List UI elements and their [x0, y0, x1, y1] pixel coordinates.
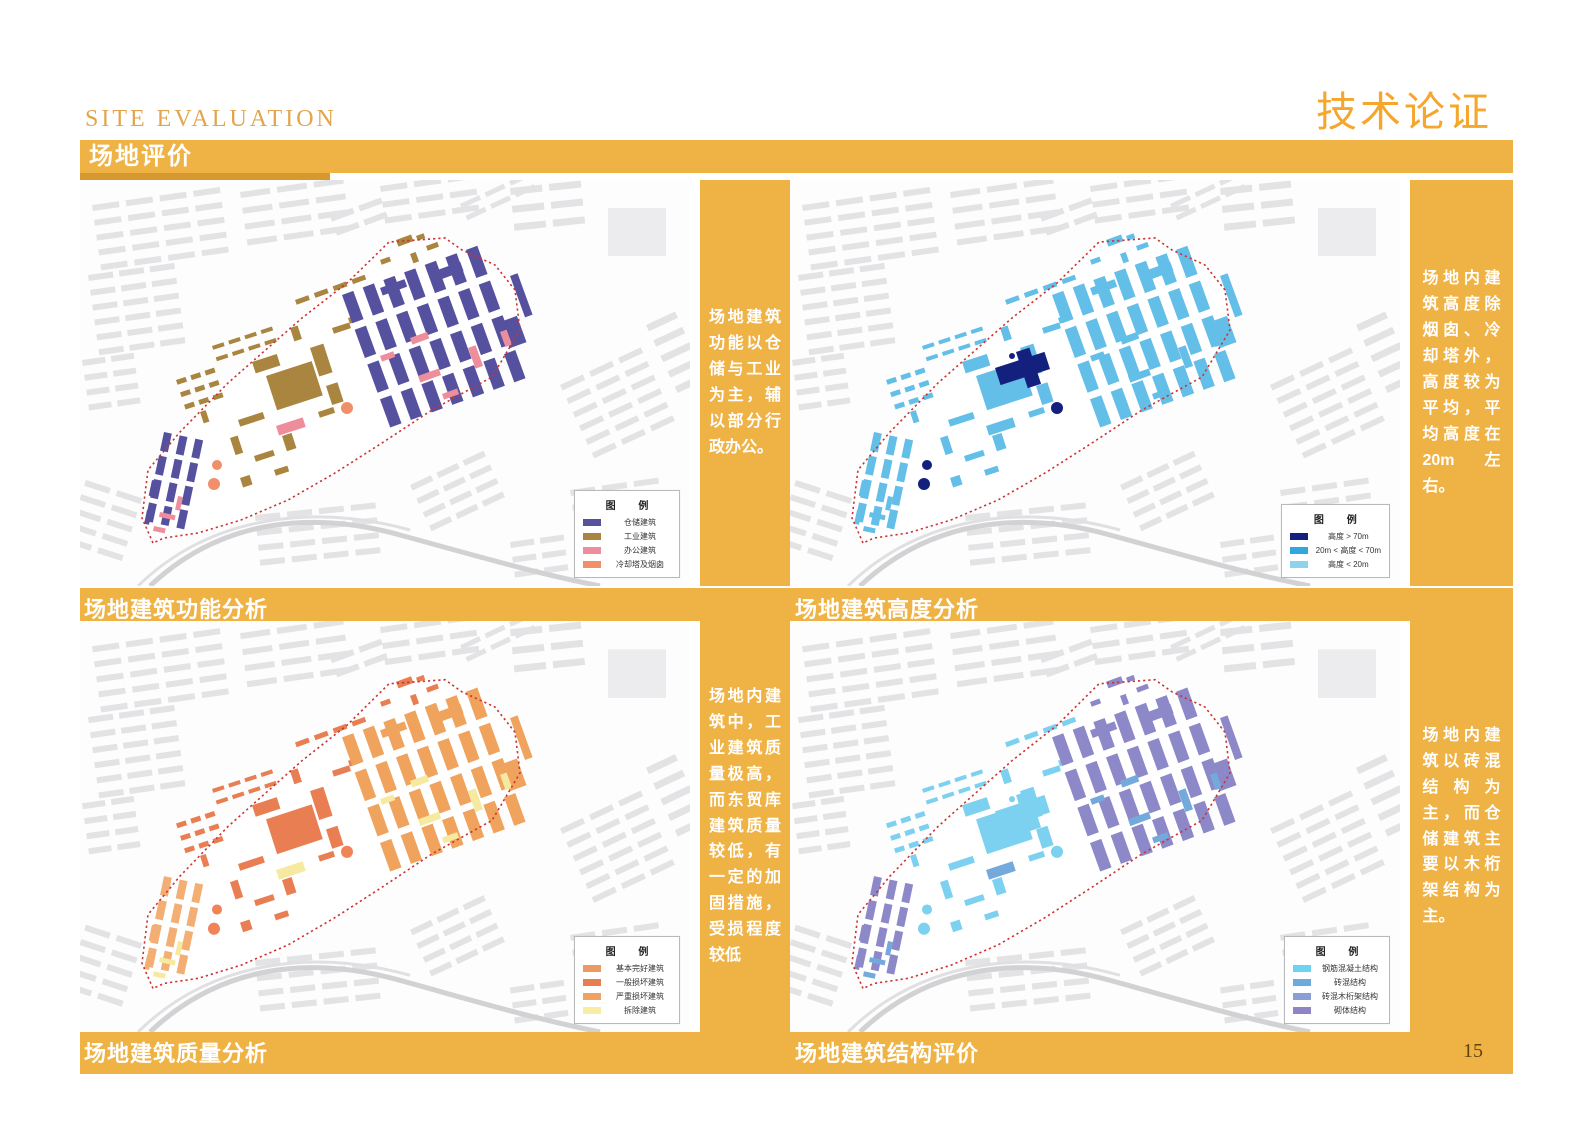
legend-label: 冷却塔及烟囱	[616, 559, 664, 570]
legend-function: 图 例仓储建筑工业建筑办公建筑冷却塔及烟囱	[574, 490, 680, 578]
site-evaluation-heading: SITE EVALUATION	[85, 106, 337, 133]
mid-caption-band: 场地建筑功能分析 场地建筑高度分析	[80, 588, 1513, 621]
legend-item: 仓储建筑	[583, 517, 671, 528]
legend-item: 高度 > 70m	[1290, 531, 1381, 542]
legend-swatch	[1293, 993, 1311, 1000]
footer-caption-band: 场地建筑质量分析 场地建筑结构评价 15	[80, 1032, 1513, 1074]
legend-label: 20m < 高度 < 70m	[1316, 545, 1381, 556]
legend-swatch	[583, 519, 601, 526]
legend-swatch	[583, 979, 601, 986]
legend-swatch	[1290, 561, 1308, 568]
legend-item: 钢筋混凝土结构	[1293, 963, 1381, 974]
note-building-structure: 场地内建筑以砖混结构为主，而仓储建筑主要以木桁架结构为主。	[1423, 723, 1501, 930]
legend-swatch	[583, 993, 601, 1000]
page-number: 15	[1463, 1040, 1483, 1063]
section-title-bar: 场地评价	[80, 140, 1513, 173]
note-strip-function: 场地建筑功能以仓储与工业为主，辅以部分行政办公。	[700, 180, 790, 586]
section-title: 场地评价	[89, 143, 193, 170]
legend-item: 基本完好建筑	[583, 963, 671, 974]
legend-title: 图 例	[583, 497, 671, 512]
corner-title: 技术论证	[1316, 78, 1492, 138]
legend-item: 砖混结构	[1293, 977, 1381, 988]
legend-title: 图 例	[1290, 511, 1381, 526]
legend-label: 砌体结构	[1334, 1005, 1366, 1016]
note-strip-height: 场地内建筑高度除烟囱、冷却塔外，高度较为平均，平均高度在20m 左右。	[1410, 180, 1513, 586]
legend-swatch	[1290, 547, 1308, 554]
note-building-height: 场地内建筑高度除烟囱、冷却塔外，高度较为平均，平均高度在20m 左右。	[1423, 266, 1501, 499]
legend-swatch	[583, 1007, 601, 1014]
legend-title: 图 例	[1293, 943, 1381, 958]
legend-structure: 图 例钢筋混凝土结构砖混结构砖混木桁架结构砌体结构	[1284, 936, 1390, 1024]
legend-swatch	[583, 533, 601, 540]
legend-swatch	[1293, 979, 1311, 986]
legend-item: 高度 < 20m	[1290, 559, 1381, 570]
legend-swatch	[1293, 1007, 1311, 1014]
legend-label: 工业建筑	[624, 531, 656, 542]
legend-swatch	[1290, 533, 1308, 540]
legend-item: 一般损坏建筑	[583, 977, 671, 988]
map-panel-building-structure: 图 例钢筋混凝土结构砖混结构砖混木桁架结构砌体结构	[790, 621, 1400, 1032]
legend-swatch	[1293, 965, 1311, 972]
legend-swatch	[583, 965, 601, 972]
legend-label: 仓储建筑	[624, 517, 656, 528]
caption-building-structure: 场地建筑结构评价	[795, 1036, 979, 1068]
legend-item: 砖混木桁架结构	[1293, 991, 1381, 1002]
map-panel-building-function: 图 例仓储建筑工业建筑办公建筑冷却塔及烟囱	[80, 180, 690, 586]
legend-label: 一般损坏建筑	[616, 977, 664, 988]
legend-label: 严重损坏建筑	[616, 991, 664, 1002]
note-building-quality: 场地内建筑中，工业建筑质量极高，而东贸库建筑质量较低，有一定的加固措施，受损程度…	[709, 684, 781, 969]
legend-title: 图 例	[583, 943, 671, 958]
map-panel-building-quality: 图 例基本完好建筑一般损坏建筑严重损坏建筑拆除建筑	[80, 621, 690, 1032]
legend-item: 冷却塔及烟囱	[583, 559, 671, 570]
caption-building-height: 场地建筑高度分析	[795, 592, 979, 624]
legend-label: 砖混结构	[1334, 977, 1366, 988]
legend-item: 工业建筑	[583, 531, 671, 542]
legend-label: 高度 > 70m	[1328, 531, 1369, 542]
legend-quality: 图 例基本完好建筑一般损坏建筑严重损坏建筑拆除建筑	[574, 936, 680, 1024]
legend-item: 严重损坏建筑	[583, 991, 671, 1002]
legend-label: 高度 < 20m	[1328, 559, 1369, 570]
title-underline-tab	[80, 173, 330, 180]
legend-label: 办公建筑	[624, 545, 656, 556]
legend-label: 拆除建筑	[624, 1005, 656, 1016]
page: SITE EVALUATION 技术论证 场地评价 图 例仓储建筑工业建筑办公建…	[0, 0, 1587, 1122]
caption-building-quality: 场地建筑质量分析	[84, 1036, 268, 1068]
legend-swatch	[583, 547, 601, 554]
legend-height: 图 例高度 > 70m20m < 高度 < 70m高度 < 20m	[1281, 504, 1390, 578]
caption-building-function: 场地建筑功能分析	[84, 592, 268, 624]
note-building-function: 场地建筑功能以仓储与工业为主，辅以部分行政办公。	[709, 305, 781, 460]
legend-swatch	[583, 561, 601, 568]
note-strip-quality: 场地内建筑中，工业建筑质量极高，而东贸库建筑质量较低，有一定的加固措施，受损程度…	[700, 621, 790, 1032]
note-strip-structure: 场地内建筑以砖混结构为主，而仓储建筑主要以木桁架结构为主。	[1410, 621, 1513, 1032]
legend-label: 砖混木桁架结构	[1322, 991, 1378, 1002]
legend-label: 基本完好建筑	[616, 963, 664, 974]
map-panel-building-height: 图 例高度 > 70m20m < 高度 < 70m高度 < 20m	[790, 180, 1400, 586]
legend-item: 办公建筑	[583, 545, 671, 556]
legend-label: 钢筋混凝土结构	[1322, 963, 1378, 974]
legend-item: 20m < 高度 < 70m	[1290, 545, 1381, 556]
legend-item: 砌体结构	[1293, 1005, 1381, 1016]
legend-item: 拆除建筑	[583, 1005, 671, 1016]
